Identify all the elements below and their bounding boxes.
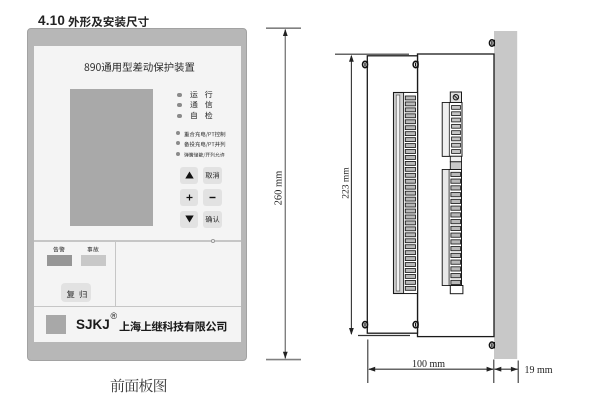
svg-text:100 mm: 100 mm xyxy=(412,359,445,370)
svg-text:19 mm: 19 mm xyxy=(525,365,553,376)
svg-text:260 mm: 260 mm xyxy=(274,171,285,206)
svg-text:223 mm: 223 mm xyxy=(342,167,352,199)
